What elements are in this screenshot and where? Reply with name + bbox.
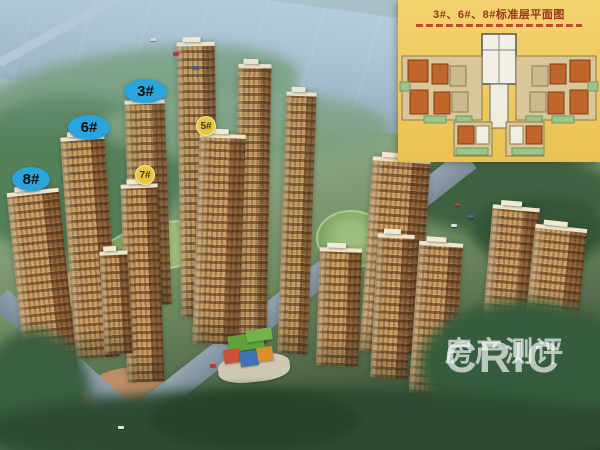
car bbox=[468, 215, 474, 218]
floorplan-inset: 3#、6#、8#标准层平面图 bbox=[398, 0, 600, 162]
tower-5 bbox=[192, 133, 245, 344]
car bbox=[150, 38, 156, 41]
car bbox=[455, 203, 461, 206]
car bbox=[451, 224, 457, 227]
tower-front-right-a bbox=[370, 233, 414, 379]
building-label-5: 5# bbox=[196, 116, 216, 136]
building-label-7: 7# bbox=[135, 165, 155, 185]
car bbox=[118, 426, 124, 429]
floorplan-title: 3#、6#、8#标准层平面图 bbox=[398, 6, 600, 22]
trees-bottom-center bbox=[150, 390, 360, 450]
tower-center-front bbox=[316, 247, 362, 366]
car bbox=[173, 52, 179, 55]
tower-small-front bbox=[99, 250, 132, 354]
building-label-6: 6# bbox=[68, 115, 110, 140]
floorplan-drawing bbox=[398, 32, 600, 162]
car bbox=[210, 364, 216, 367]
aerial-rendering: 3# 6# 8# 5# 7# 3#、6#、8#标准层平面图 bbox=[0, 0, 600, 450]
kindergarten-roof-2 bbox=[245, 327, 272, 343]
kindergarten-orange-block bbox=[256, 346, 274, 362]
kindergarten-red-block bbox=[223, 348, 241, 364]
car bbox=[193, 66, 199, 69]
building-label-8: 8# bbox=[12, 167, 50, 191]
watermark-chinese-text: 房产测评 bbox=[445, 336, 565, 368]
building-label-3: 3# bbox=[124, 79, 167, 103]
floorplan-subtitle-fineprint bbox=[416, 24, 582, 27]
